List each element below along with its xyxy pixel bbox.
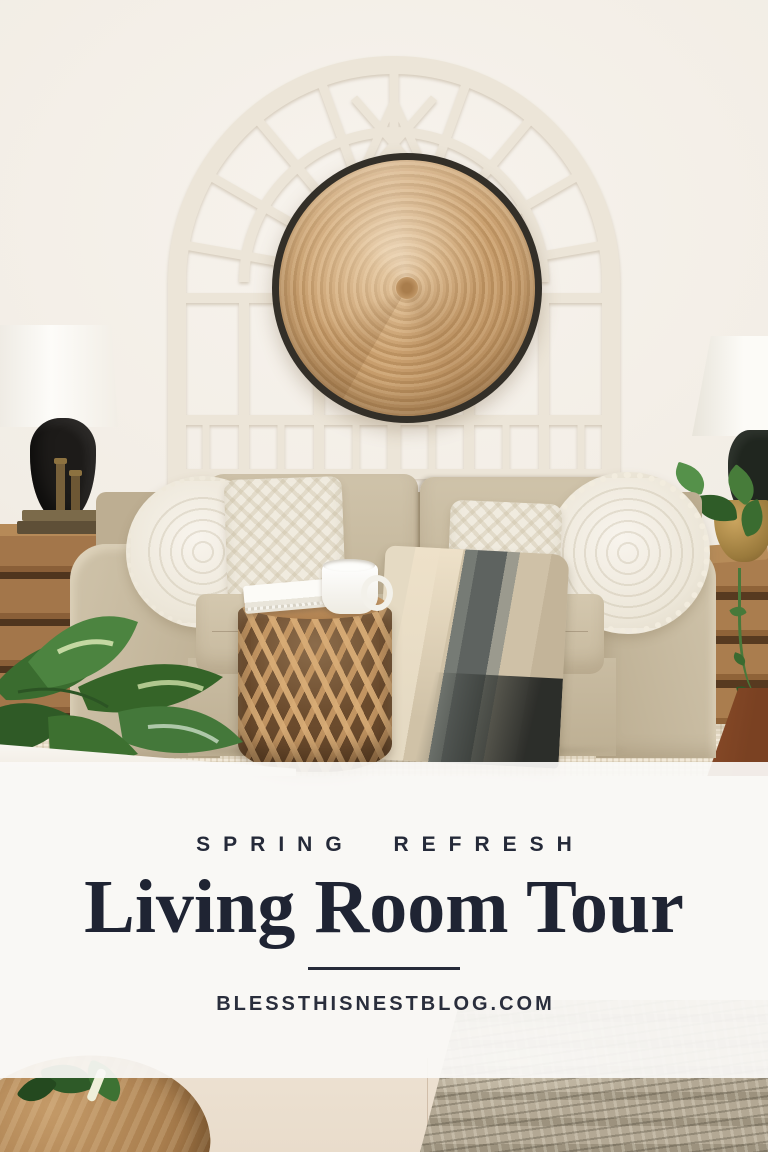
overlay-website: BLESSTHISNESTBLOG.COM — [213, 994, 555, 1014]
pinterest-graphic: SPRING REFRESH Living Room Tour BLESSTHI… — [0, 0, 768, 1152]
plaid-throw-blanket — [375, 545, 570, 768]
left-lamp-shade — [0, 325, 118, 427]
round-woven-wall-basket — [272, 153, 542, 423]
brass-candlestick — [56, 458, 65, 518]
basket-spiral-center — [396, 277, 418, 299]
leaf — [735, 499, 768, 537]
overlay-divider — [308, 967, 460, 970]
white-coffee-mug — [322, 564, 378, 614]
woven-drum-side-table — [238, 596, 392, 772]
text-overlay-banner: SPRING REFRESH Living Room Tour BLESSTHI… — [0, 762, 768, 1078]
overlay-kicker: SPRING REFRESH — [183, 834, 585, 855]
overlay-title: Living Room Tour — [84, 869, 684, 945]
